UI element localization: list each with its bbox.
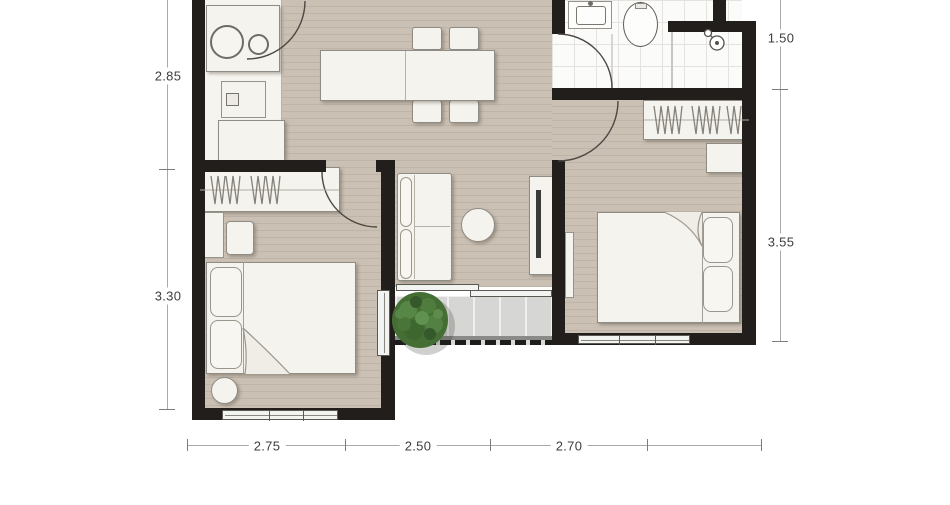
balcony-sliding-door (396, 284, 479, 291)
wall-shower-stub (713, 0, 726, 23)
sink-basin (576, 6, 606, 25)
kitchen-cabinet (218, 120, 285, 161)
dining-chair (449, 100, 479, 123)
dimension-label: 2.70 (551, 438, 588, 455)
wall-shower-top (668, 21, 756, 32)
dimension-tick (647, 439, 648, 451)
duvet-edge (702, 212, 703, 323)
pillow (210, 320, 242, 369)
dimension-tick (159, 169, 175, 170)
sofa-back-cushion (400, 229, 412, 279)
dimension-label: 3.30 (150, 288, 187, 305)
wall-bathroom-bottom (552, 88, 756, 100)
coffee-table (461, 208, 495, 242)
stove-burner-small-icon (248, 34, 269, 55)
dimension-line-left (167, 0, 168, 410)
bathroom-glass-partition (611, 34, 613, 88)
wardrobe-right-bedroom (643, 100, 750, 140)
balcony-sliding-door-pane (470, 290, 552, 297)
toilet-flush-button (635, 3, 647, 9)
dining-chair (449, 27, 479, 50)
stove-burner-large-icon (210, 25, 244, 59)
bedroom-stool (211, 377, 238, 404)
wardrobe-left-bedroom (199, 167, 340, 212)
dimension-line-right (780, 0, 781, 342)
dimension-tick (345, 439, 346, 451)
dining-table-divider (405, 51, 406, 100)
dimension-label: 2.75 (249, 438, 286, 455)
washing-machine-icon (226, 93, 239, 106)
dining-chair (412, 27, 442, 50)
dimension-tick (761, 439, 762, 451)
balcony-railing-dashes (395, 340, 552, 345)
pillow (210, 267, 242, 317)
dimension-tick (187, 439, 188, 451)
dimension-label: 3.55 (763, 234, 800, 251)
tv-console (529, 176, 554, 275)
wall-outer-right (742, 21, 756, 345)
dimension-tick (772, 89, 788, 90)
dimension-label: 2.50 (400, 438, 437, 455)
window-bedroom-left-bottom (222, 410, 338, 420)
wall-bedroom-right-left (552, 160, 565, 343)
sofa-back-cushion (400, 177, 412, 227)
dining-chair (412, 100, 442, 123)
floor-bedroom-right-threshold (552, 100, 565, 160)
duvet-edge (243, 262, 244, 374)
sofa-seat-divider (415, 226, 450, 227)
window-bedroom-left-side (377, 290, 390, 356)
pillow (703, 266, 733, 312)
floor-plan: 2.85 3.30 1.50 3.55 2.75 2.50 2.70 (0, 0, 950, 505)
shower-glass-partition (671, 32, 673, 88)
balcony-floor (395, 296, 552, 337)
sofa-seat-edge (414, 175, 415, 279)
wall-bathroom-left (552, 0, 565, 34)
pillow (703, 217, 733, 263)
window-bedroom-right-bottom (578, 335, 690, 344)
dimension-tick (772, 341, 788, 342)
dimension-tick (159, 409, 175, 410)
nightstand-left-bedroom (226, 221, 254, 255)
dresser-right-bedroom (565, 232, 574, 298)
dimension-tick (490, 439, 491, 451)
tv-icon (536, 190, 541, 258)
dimension-label: 2.85 (150, 68, 187, 85)
wall-bedroom-left-top (192, 160, 326, 172)
sink-faucet-icon (588, 1, 593, 6)
dining-table (320, 50, 495, 101)
wall-outer-left (192, 0, 205, 420)
dimension-label: 1.50 (763, 30, 800, 47)
